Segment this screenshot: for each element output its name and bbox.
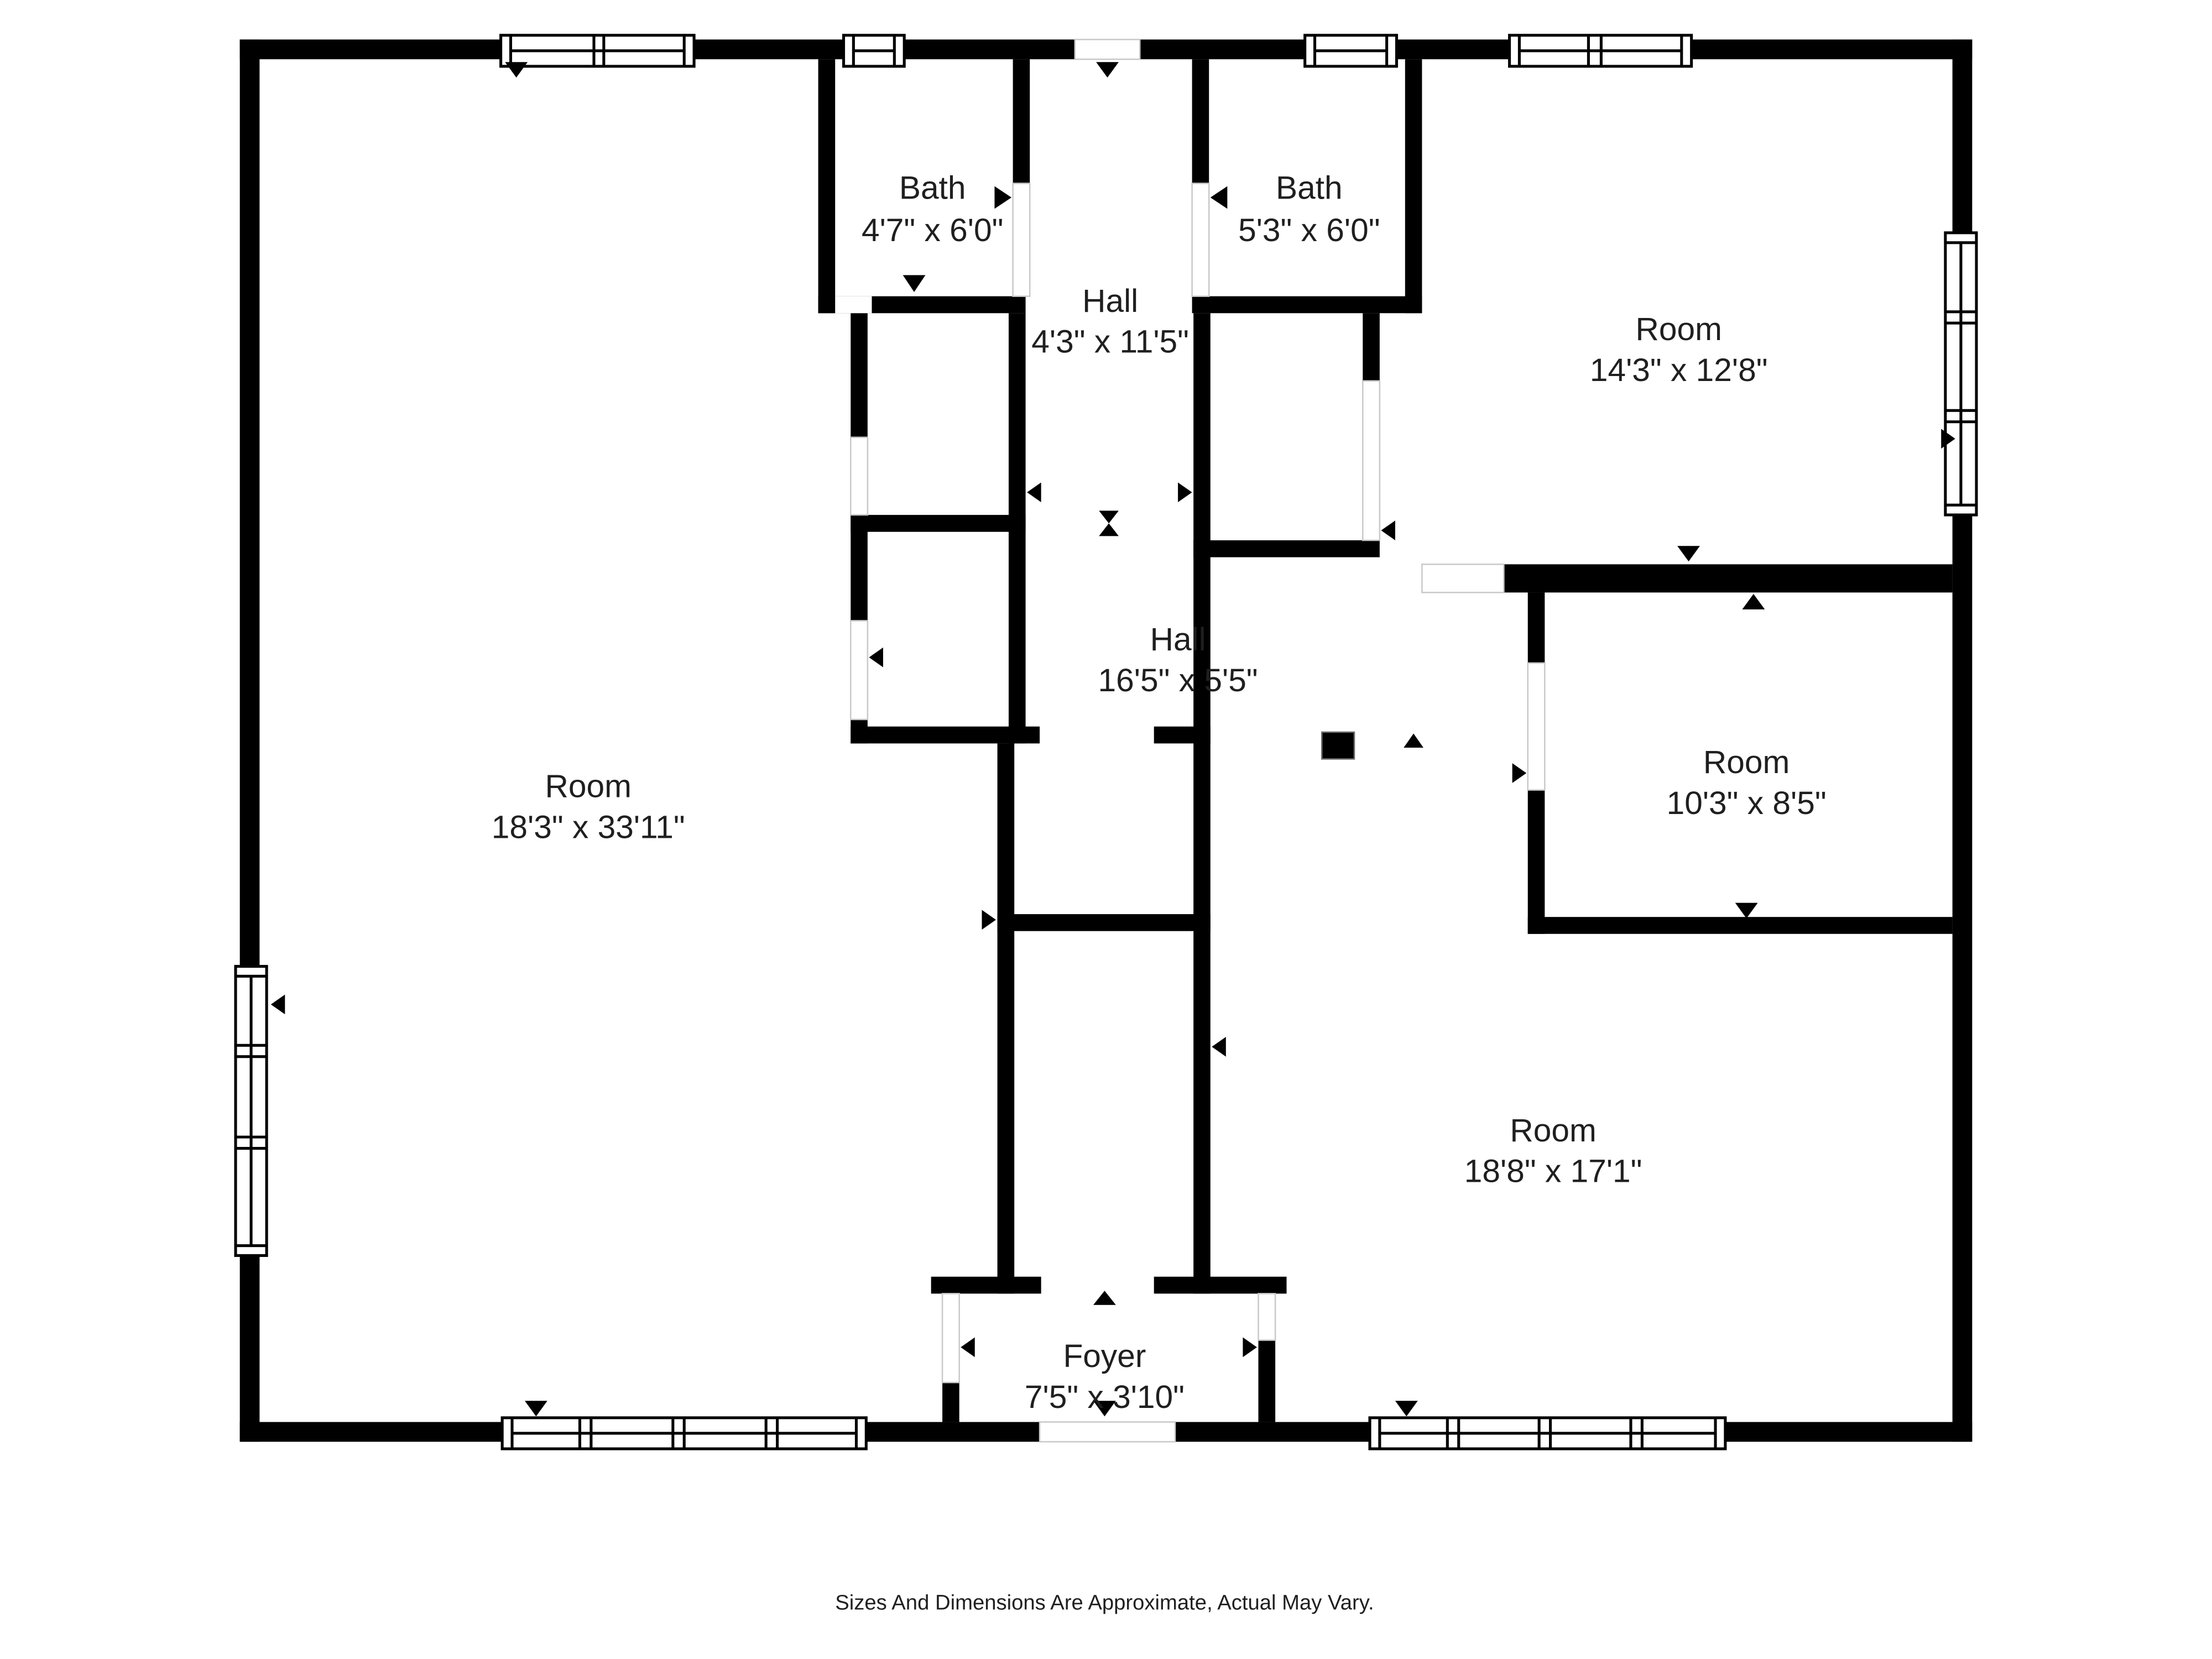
wall bbox=[942, 1383, 959, 1422]
room-label-foyer: Foyer bbox=[1063, 1338, 1146, 1374]
room-label-bath-2: Bath bbox=[1276, 170, 1343, 206]
room-dims-room-top-right: 14'3" x 12'8" bbox=[1590, 352, 1768, 388]
windows bbox=[236, 35, 1976, 1449]
window-symbol bbox=[1305, 35, 1397, 66]
room-dims-room-mid-right: 10'3" x 8'5" bbox=[1667, 785, 1827, 821]
wall bbox=[1193, 540, 1380, 557]
disclaimer-text: Sizes And Dimensions Are Approximate, Ac… bbox=[835, 1591, 1374, 1615]
wall bbox=[1405, 59, 1422, 313]
room-dims-hall-main: 16'5" x 5'5" bbox=[1098, 662, 1258, 698]
arrow-left-icon bbox=[1381, 520, 1395, 540]
room-label-room-mid-right: Room bbox=[1703, 744, 1790, 780]
arrow-up-icon bbox=[1099, 523, 1119, 536]
opening-entry bbox=[1040, 1422, 1175, 1442]
arrow-left-icon bbox=[1027, 482, 1041, 502]
arrow-right-icon bbox=[1243, 1337, 1257, 1357]
room-label-hall-upper: Hall bbox=[1082, 283, 1138, 319]
wall-pillar bbox=[1322, 732, 1354, 759]
door-arrows bbox=[271, 62, 1955, 1416]
wall bbox=[998, 914, 1211, 931]
arrow-down-icon bbox=[1096, 62, 1119, 77]
floor-plan: Bath 4'7" x 6'0" Bath 5'3" x 6'0" Hall 4… bbox=[0, 0, 2212, 1659]
door-bath1 bbox=[1013, 184, 1030, 296]
window-symbol bbox=[502, 1418, 866, 1449]
room-dims-foyer: 7'5" x 3'10" bbox=[1025, 1379, 1185, 1415]
room-dims-bath-2: 5'3" x 6'0" bbox=[1238, 212, 1380, 248]
window-symbol bbox=[844, 35, 905, 66]
opening-hall-top bbox=[1075, 39, 1140, 59]
arrow-left-icon bbox=[271, 994, 285, 1014]
room-dims-room-bottom-right: 18'8" x 17'1" bbox=[1464, 1154, 1642, 1190]
opening-bath1-bottom bbox=[835, 296, 872, 314]
door-closet-left-upper bbox=[851, 437, 868, 515]
room-dims-hall-upper: 4'3" x 11'5" bbox=[1031, 324, 1189, 360]
arrow-left-icon bbox=[1212, 1037, 1226, 1057]
window-symbol bbox=[501, 35, 694, 66]
window-symbol bbox=[1945, 233, 1976, 515]
room-labels: Bath 4'7" x 6'0" Bath 5'3" x 6'0" Hall 4… bbox=[492, 170, 1827, 1415]
room-label-room-top-right: Room bbox=[1635, 311, 1721, 347]
wall bbox=[931, 1277, 1041, 1294]
arrow-left-icon bbox=[869, 648, 883, 667]
wall bbox=[1192, 296, 1422, 314]
arrow-left-icon bbox=[961, 1337, 975, 1357]
room-label-room-left: Room bbox=[545, 768, 632, 804]
foyer-side-left bbox=[942, 1293, 959, 1383]
wall bbox=[1192, 59, 1209, 183]
wall bbox=[1528, 790, 1545, 934]
wall bbox=[1193, 313, 1211, 1293]
door-bath2 bbox=[1192, 184, 1209, 296]
room-label-hall-main: Hall bbox=[1150, 622, 1206, 658]
window-symbol bbox=[1370, 1418, 1725, 1449]
door-closet-right bbox=[1363, 381, 1380, 540]
wall bbox=[1013, 59, 1030, 183]
window-symbol bbox=[1510, 35, 1692, 66]
room-dims-room-left: 18'3" x 33'11" bbox=[492, 809, 685, 845]
arrow-up-icon bbox=[1093, 1291, 1116, 1305]
arrow-down-icon bbox=[1735, 903, 1758, 919]
wall bbox=[998, 743, 1015, 1293]
room-label-room-bottom-right: Room bbox=[1510, 1113, 1596, 1149]
doorway-room-14-3 bbox=[1422, 564, 1504, 592]
wall bbox=[1259, 1340, 1276, 1422]
wall bbox=[1154, 727, 1211, 744]
wall bbox=[1504, 564, 1952, 592]
foyer-side-right bbox=[1259, 1293, 1276, 1340]
door-left-room bbox=[851, 620, 868, 719]
wall bbox=[851, 727, 1040, 744]
arrow-down-icon bbox=[903, 275, 926, 292]
arrow-down-icon bbox=[1395, 1401, 1418, 1416]
arrow-down-icon bbox=[1677, 546, 1700, 561]
wall bbox=[1528, 917, 1953, 934]
wall bbox=[1154, 1277, 1287, 1294]
wall bbox=[851, 313, 868, 437]
room-dims-bath-1: 4'7" x 6'0" bbox=[862, 212, 1003, 248]
wall bbox=[1363, 313, 1380, 380]
arrow-left-icon bbox=[1211, 186, 1228, 209]
arrow-down-icon bbox=[525, 1401, 547, 1416]
room-label-bath-1: Bath bbox=[899, 170, 966, 206]
arrow-right-icon bbox=[982, 910, 997, 930]
arrow-up-icon bbox=[1404, 734, 1423, 748]
interior-walls bbox=[818, 59, 1953, 1422]
arrow-down-icon bbox=[505, 62, 528, 77]
wall bbox=[818, 59, 836, 313]
arrow-down-icon bbox=[1099, 510, 1119, 523]
wall bbox=[1528, 592, 1545, 663]
door-room-10-3 bbox=[1528, 663, 1545, 790]
arrow-right-icon bbox=[994, 186, 1011, 209]
window-symbol bbox=[236, 966, 267, 1255]
wall bbox=[851, 515, 1025, 532]
arrow-right-icon bbox=[1178, 482, 1192, 502]
arrow-up-icon bbox=[1743, 594, 1765, 609]
outer-walls bbox=[240, 39, 1973, 1442]
arrow-right-icon bbox=[1512, 763, 1527, 783]
